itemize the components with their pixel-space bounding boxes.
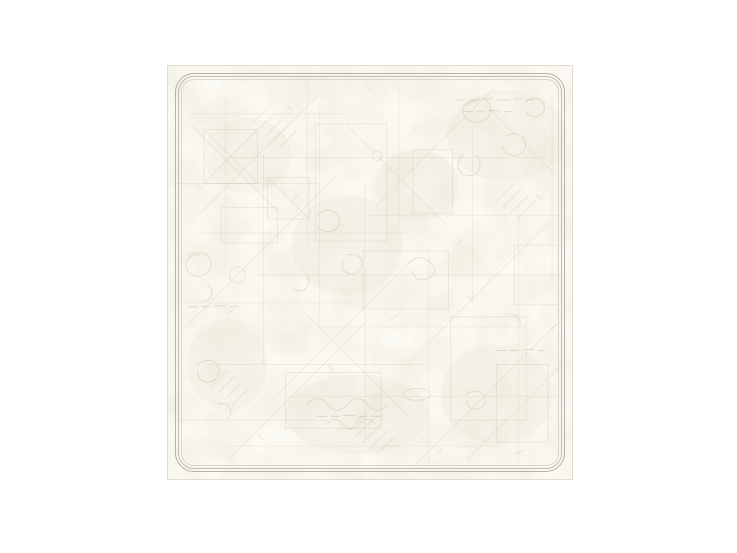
faded-parchment-panel — [167, 65, 573, 480]
parchment-texture-graphic — [168, 66, 572, 479]
page-background — [0, 0, 737, 553]
